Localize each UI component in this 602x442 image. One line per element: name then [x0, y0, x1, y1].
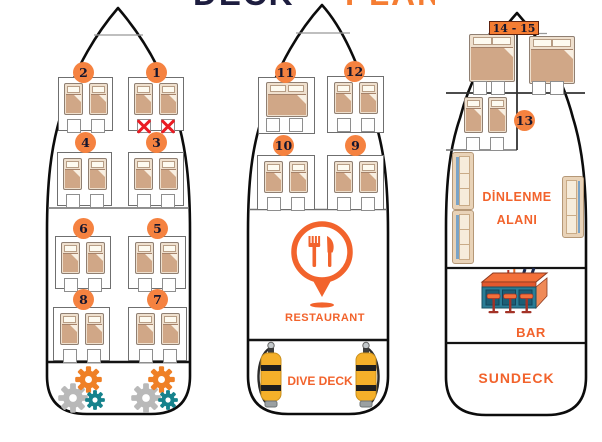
restaurant-label: RESTAURANT — [252, 312, 398, 324]
cabin-number-6: 6 — [73, 218, 94, 239]
floor-square — [550, 81, 564, 95]
floor-square — [491, 81, 505, 95]
floor-square — [90, 194, 104, 208]
floor-square — [91, 119, 105, 133]
floor-square — [88, 278, 102, 292]
single-bed — [488, 97, 507, 133]
floor-square — [473, 81, 487, 95]
floor-square — [490, 137, 504, 151]
single-bed — [159, 83, 178, 115]
dive-tank-icon — [350, 341, 382, 413]
bar-label: BAR — [506, 325, 556, 340]
red-x-mark — [161, 119, 175, 133]
sofa — [562, 176, 584, 238]
single-bed — [159, 158, 178, 190]
single-bed — [161, 313, 180, 345]
single-bed — [89, 83, 108, 115]
floor-square — [466, 137, 480, 151]
single-bed — [289, 161, 308, 193]
floor-square — [63, 349, 77, 363]
single-bed — [136, 313, 155, 345]
single-bed — [86, 242, 105, 274]
bar-stools — [487, 294, 533, 313]
single-bed — [63, 158, 82, 190]
floor-square — [532, 81, 546, 95]
single-bed — [61, 242, 80, 274]
dive-deck-label: DIVE DECK — [287, 374, 353, 388]
sundeck-label: SUNDECK — [446, 370, 587, 386]
floor-square — [66, 194, 80, 208]
single-bed — [85, 313, 104, 345]
single-bed — [464, 97, 483, 133]
gear-icon — [148, 366, 175, 393]
floor-square — [137, 194, 151, 208]
cabin-number-3: 3 — [146, 132, 167, 153]
page-title: DECK PLAN — [185, 0, 435, 7]
floor-square — [266, 118, 280, 132]
cabin-room-12 — [327, 76, 384, 133]
cabin-room-10 — [257, 155, 315, 210]
cabin-room-5 — [128, 236, 186, 289]
cabin-number-11: 11 — [275, 62, 296, 83]
floor-square — [337, 197, 351, 211]
single-bed — [160, 242, 179, 274]
restaurant-pin-icon — [287, 219, 357, 311]
single-bed — [88, 158, 107, 190]
lounge-label-line1: DİNLENME — [447, 190, 587, 204]
cabin-number-5: 5 — [147, 218, 168, 239]
cabin-number-12: 12 — [344, 61, 365, 82]
cabin-number-7: 7 — [147, 289, 168, 310]
double-bed — [469, 34, 515, 82]
single-bed — [334, 82, 353, 114]
cabin-number-8: 8 — [73, 289, 94, 310]
floor-square — [337, 118, 351, 132]
cabin-number-4: 4 — [75, 132, 96, 153]
floor-square — [139, 349, 153, 363]
double-bed — [266, 82, 308, 117]
single-bed — [134, 83, 153, 115]
cabin-room-1 — [128, 77, 184, 131]
cabin-number-13: 13 — [514, 110, 535, 131]
cabin-room-4 — [57, 152, 112, 206]
cabin-room-2 — [58, 77, 113, 131]
floor-square — [87, 349, 101, 363]
cabin-room-7 — [128, 307, 187, 361]
single-bed — [135, 242, 154, 274]
floor-square — [361, 197, 375, 211]
floor-square — [291, 197, 305, 211]
gear-icon — [85, 390, 105, 410]
cabin-room-11 — [258, 77, 315, 134]
dive-tank-icon — [255, 341, 287, 413]
engine-gears-right-cluster — [131, 365, 185, 413]
floor-square — [161, 194, 175, 208]
cabin-number-2: 2 — [73, 62, 94, 83]
cabin-room-6 — [55, 236, 111, 289]
gear-icon — [75, 366, 102, 393]
cabin-label-14-15: 14 - 15 — [489, 21, 539, 35]
page-title-dark-word: DECK — [193, 0, 295, 7]
cabin-number-1: 1 — [146, 62, 167, 83]
floor-square — [64, 278, 78, 292]
single-bed — [134, 158, 153, 190]
floor-square — [361, 118, 375, 132]
floor-square — [289, 118, 303, 132]
page-title-orange-word: PLAN — [345, 0, 435, 7]
floor-square — [162, 278, 176, 292]
single-bed — [359, 161, 378, 193]
floor-square — [138, 278, 152, 292]
cabin-room-8 — [53, 307, 110, 361]
single-bed — [64, 83, 83, 115]
engine-gears-left-cluster — [58, 365, 112, 413]
single-bed — [60, 313, 79, 345]
floor-square — [67, 119, 81, 133]
cabin-room-9 — [327, 155, 384, 210]
double-bed — [529, 36, 575, 84]
cabin-room-3 — [128, 152, 184, 206]
single-bed — [359, 82, 378, 114]
lounge-label-line2: ALANI — [447, 213, 587, 227]
cabin-number-10: 10 — [273, 135, 294, 156]
cabin-number-9: 9 — [345, 135, 366, 156]
deck-plan-canvas: DECK PLAN — [0, 0, 602, 442]
bar-counter-icon — [479, 266, 553, 330]
floor-square — [267, 197, 281, 211]
red-x-mark — [137, 119, 151, 133]
single-bed — [334, 161, 353, 193]
gear-icon — [158, 390, 178, 410]
single-bed — [264, 161, 283, 193]
floor-square — [163, 349, 177, 363]
